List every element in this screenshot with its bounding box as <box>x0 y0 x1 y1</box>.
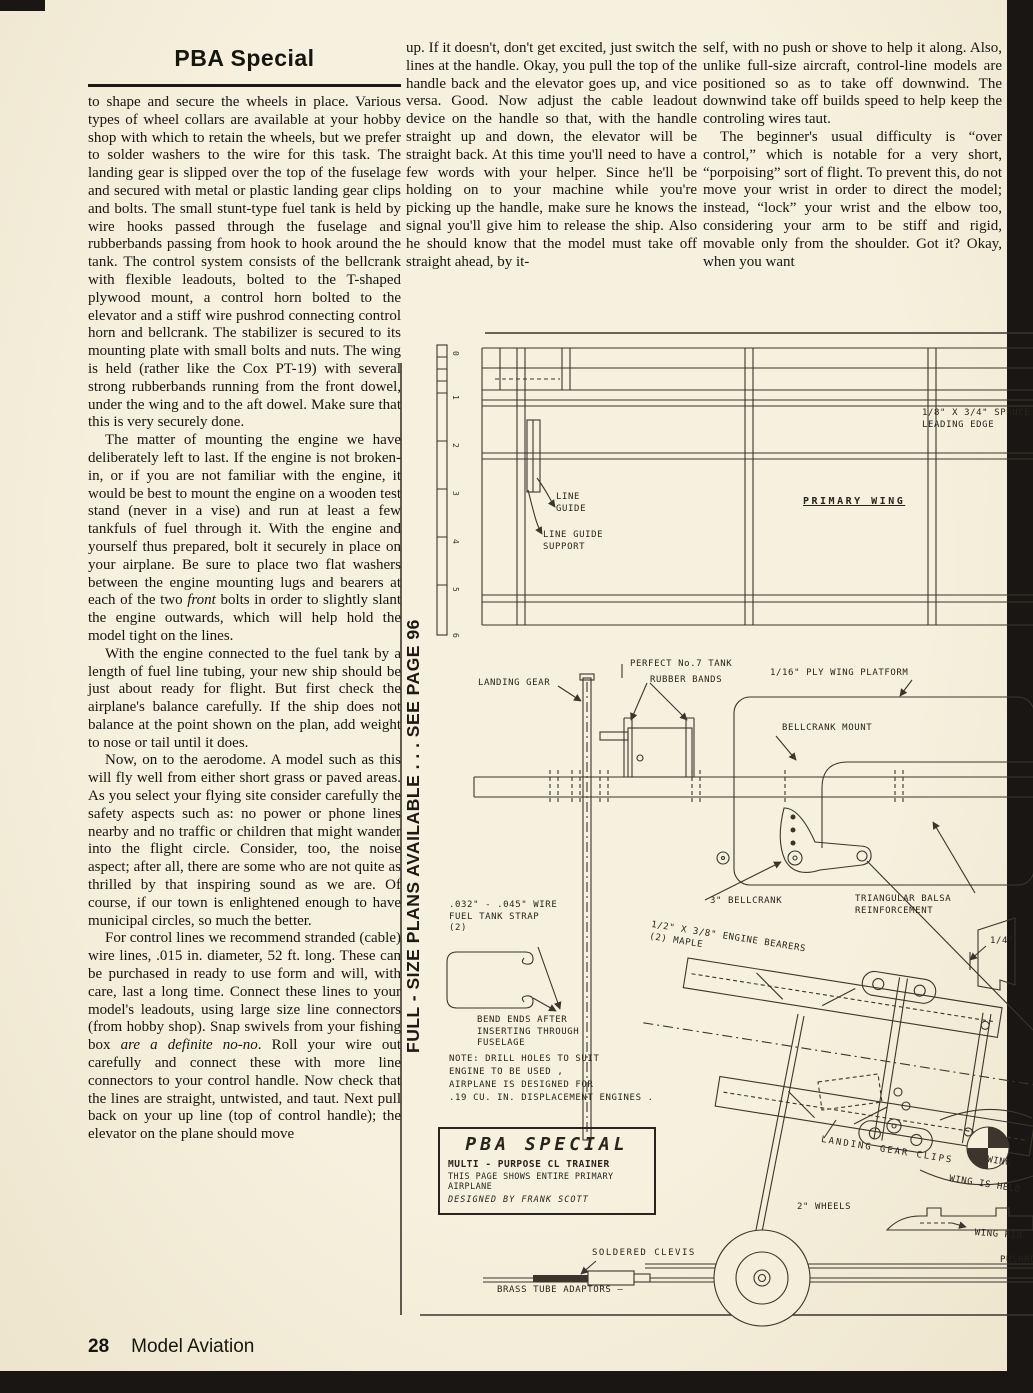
plan-label-pushrod: PUSHROD <box>1000 1255 1033 1267</box>
magazine-name: Model Aviation <box>131 1336 254 1357</box>
plan-label-landing-gear: LANDING GEAR <box>478 678 550 690</box>
plan-label-perfect-tank: PERFECT No.7 TANK <box>630 659 732 671</box>
page-title: PBA Special <box>88 45 401 72</box>
plan-label-spruce-leading-edge: 1/8" X 3/4" SPRUCE LEADING EDGE <box>922 408 1030 431</box>
paragraph: The matter of mounting the engine we hav… <box>88 432 401 646</box>
article-column-left: to shape and secure the wheels in place.… <box>88 94 401 1144</box>
balance-point-icon <box>920 1109 1033 1184</box>
ruler-tick-label: 3 <box>451 491 460 496</box>
wing-rib-section <box>887 1208 1033 1230</box>
paragraph: Now, on to the aerodome. A model such as… <box>88 752 401 930</box>
paragraph: to shape and secure the wheels in place.… <box>88 94 401 432</box>
plan-label-bellcrank-mount: BELLCRANK MOUNT <box>782 723 872 735</box>
plan-label-soldered-clevis: SOLDERED CLEVIS <box>592 1248 696 1260</box>
quarter-inch-detail <box>970 918 1015 990</box>
plan-label-quarter-inch: 1/4" <box>990 936 1014 948</box>
plan-label-note: NOTE: DRILL HOLES TO SUIT ENGINE TO BE U… <box>449 1053 654 1105</box>
scale-ruler: 0 1 2 3 4 5 6 <box>437 345 460 638</box>
plan-title-box: PBA SPECIAL MULTI - PURPOSE CL TRAINER T… <box>438 1127 656 1215</box>
plan-subtitle: MULTI - PURPOSE CL TRAINER <box>448 1159 646 1170</box>
plan-label-fuel-tank-strap: .032" - .045" WIRE FUEL TANK STRAP (2) <box>449 900 557 935</box>
page-footer: 28Model Aviation <box>88 1336 254 1358</box>
plan-label-primary-wing: PRIMARY WING <box>803 496 905 508</box>
wing-platform <box>734 680 1033 893</box>
ruler-tick-label: 5 <box>451 587 460 592</box>
plan-designer: DESIGNED BY FRANK SCOTT <box>448 1195 646 1205</box>
paragraph: self, with no push or shove to help it a… <box>703 40 1002 129</box>
clevis <box>533 1261 650 1285</box>
plan-label-3in-bellcrank: 3" BELLCRANK <box>710 896 782 908</box>
page-border-bottom <box>0 1371 1033 1393</box>
bellcrank <box>705 808 1033 1030</box>
ruler-tick-label: 0 <box>451 351 460 356</box>
plan-label-bend-ends: BEND ENDS AFTER INSERTING THROUGH FUSELA… <box>477 1015 579 1050</box>
paragraph: The beginner's usual difficulty is “over… <box>703 129 1002 271</box>
wheel <box>714 1230 810 1326</box>
magazine-page: PBA Special to shape and secure the whee… <box>0 0 1033 1393</box>
plan-label-line-guide-support: LINE GUIDE SUPPORT <box>543 530 603 553</box>
page-border-top-left <box>0 0 45 11</box>
article-column-right: self, with no push or shove to help it a… <box>703 40 1002 271</box>
plan-label-brass-tube-adaptors: BRASS TUBE ADAPTORS — <box>497 1285 623 1297</box>
article-column-middle: up. If it doesn't, don't get excited, ju… <box>406 40 697 271</box>
paragraph: For control lines we recommend stranded … <box>88 930 401 1144</box>
plan-description: THIS PAGE SHOWS ENTIRE PRIMARY AIRPLANE <box>448 1172 646 1192</box>
page-number: 28 <box>88 1336 109 1357</box>
ruler-tick-label: 6 <box>451 633 460 638</box>
fuel-tank-strap-detail <box>447 947 560 1011</box>
title-rule <box>88 84 401 87</box>
ruler-tick-label: 4 <box>451 539 460 544</box>
ruler-tick-label: 1 <box>451 395 460 400</box>
paragraph: up. If it doesn't, don't get excited, ju… <box>406 40 697 271</box>
wing-plan <box>482 348 1033 625</box>
plan-title: PBA SPECIAL <box>448 1134 646 1155</box>
fuselage-top-view <box>474 770 1033 804</box>
plan-label-triangular-balsa: TRIANGULAR BALSA REINFORCEMENT <box>855 894 951 917</box>
plan-label-2in-wheels: 2" WHEELS <box>797 1202 851 1214</box>
plan-label-rubber-bands: RUBBER BANDS <box>650 675 722 687</box>
ruler-tick-label: 2 <box>451 443 460 448</box>
plan-label-line-guide: LINE GUIDE <box>556 492 586 515</box>
plan-label-ply-wing-platform: 1/16" PLY WING PLATFORM <box>770 668 908 680</box>
paragraph: With the engine connected to the fuel ta… <box>88 646 401 753</box>
